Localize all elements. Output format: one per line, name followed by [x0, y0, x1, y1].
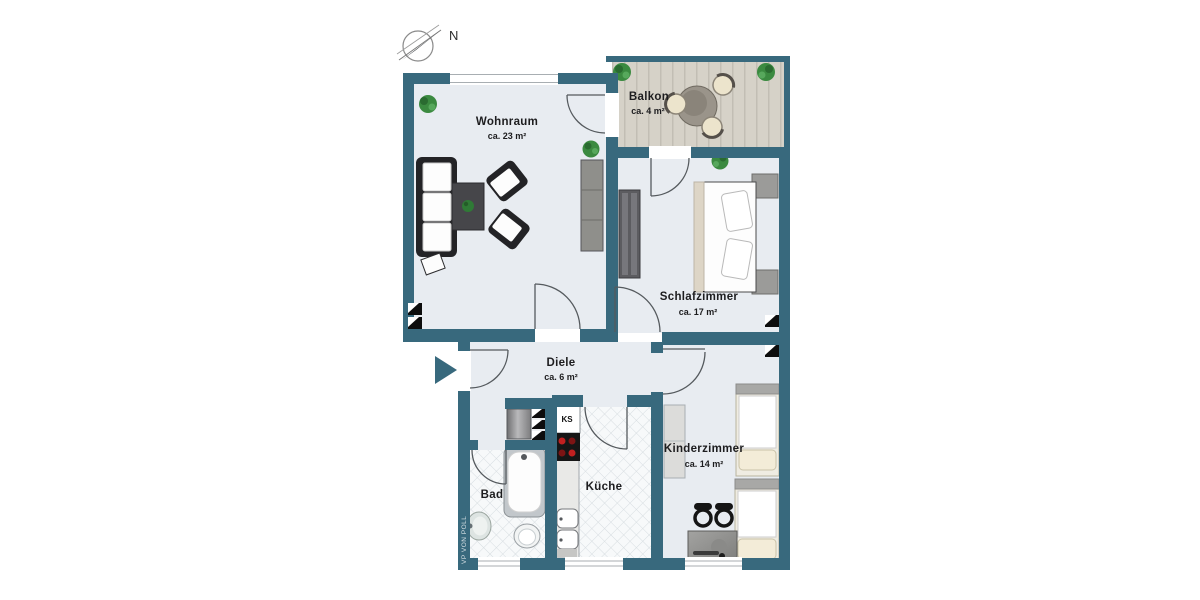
room-label-kueche: Küche — [586, 481, 623, 493]
single-bed — [736, 384, 779, 476]
toilet — [514, 524, 540, 548]
room-area-balkon: ca. 4 m² — [631, 106, 665, 116]
window — [565, 557, 623, 571]
boiler — [507, 409, 531, 439]
kueche-furniture — [555, 405, 580, 558]
room-label-wohnraum: Wohnraum — [476, 116, 538, 128]
balcony-door-opening — [605, 93, 619, 137]
floor-plan: N Wohnraum ca. 23 m² Balkon ca. 4 m² Sch… — [0, 0, 1200, 600]
room-label-kinderzimmer: Kinderzimmer — [664, 443, 745, 455]
room-area-wohnraum: ca. 23 m² — [488, 131, 527, 141]
room-label-diele: Diele — [547, 357, 576, 369]
plant — [757, 63, 775, 81]
sideboard — [581, 160, 603, 251]
wardrobe — [619, 190, 640, 278]
plant — [583, 141, 600, 158]
single-bed — [735, 479, 779, 563]
room-label-balkon: Balkon — [629, 91, 669, 103]
corner-marker — [765, 345, 779, 357]
bathtub — [504, 447, 545, 517]
wash-basin — [467, 512, 491, 540]
window — [478, 557, 520, 571]
room-label-schlafzimmer: Schlafzimmer — [660, 291, 739, 303]
corner-marker — [408, 303, 422, 315]
utility-niche — [505, 408, 546, 440]
entrance-opening — [457, 351, 471, 391]
room-area-kinderzimmer: ca. 14 m² — [685, 459, 724, 469]
room-area-diele: ca. 6 m² — [544, 372, 578, 382]
window — [450, 72, 558, 85]
brand-watermark: VP VON POLL — [461, 516, 468, 564]
entrance-arrow — [435, 356, 457, 384]
floor-plan-page: N Wohnraum ca. 23 m² Balkon ca. 4 m² Sch… — [0, 0, 1200, 600]
kitchen-mat — [557, 549, 577, 557]
room-area-schlafzimmer: ca. 17 m² — [679, 307, 718, 317]
shelf-markers — [532, 409, 545, 440]
coffee-table — [452, 183, 484, 230]
room-label-bad: Bad — [481, 489, 504, 501]
corner-marker — [765, 315, 779, 327]
fridge-label: KS — [561, 415, 573, 424]
north-label: N — [449, 28, 458, 43]
corner-marker — [408, 317, 422, 329]
plant — [419, 95, 437, 113]
stove — [555, 433, 580, 461]
kitchen-sink — [557, 509, 578, 557]
compass: N — [397, 25, 458, 61]
balcony-door-opening — [649, 146, 691, 159]
window — [685, 557, 742, 571]
